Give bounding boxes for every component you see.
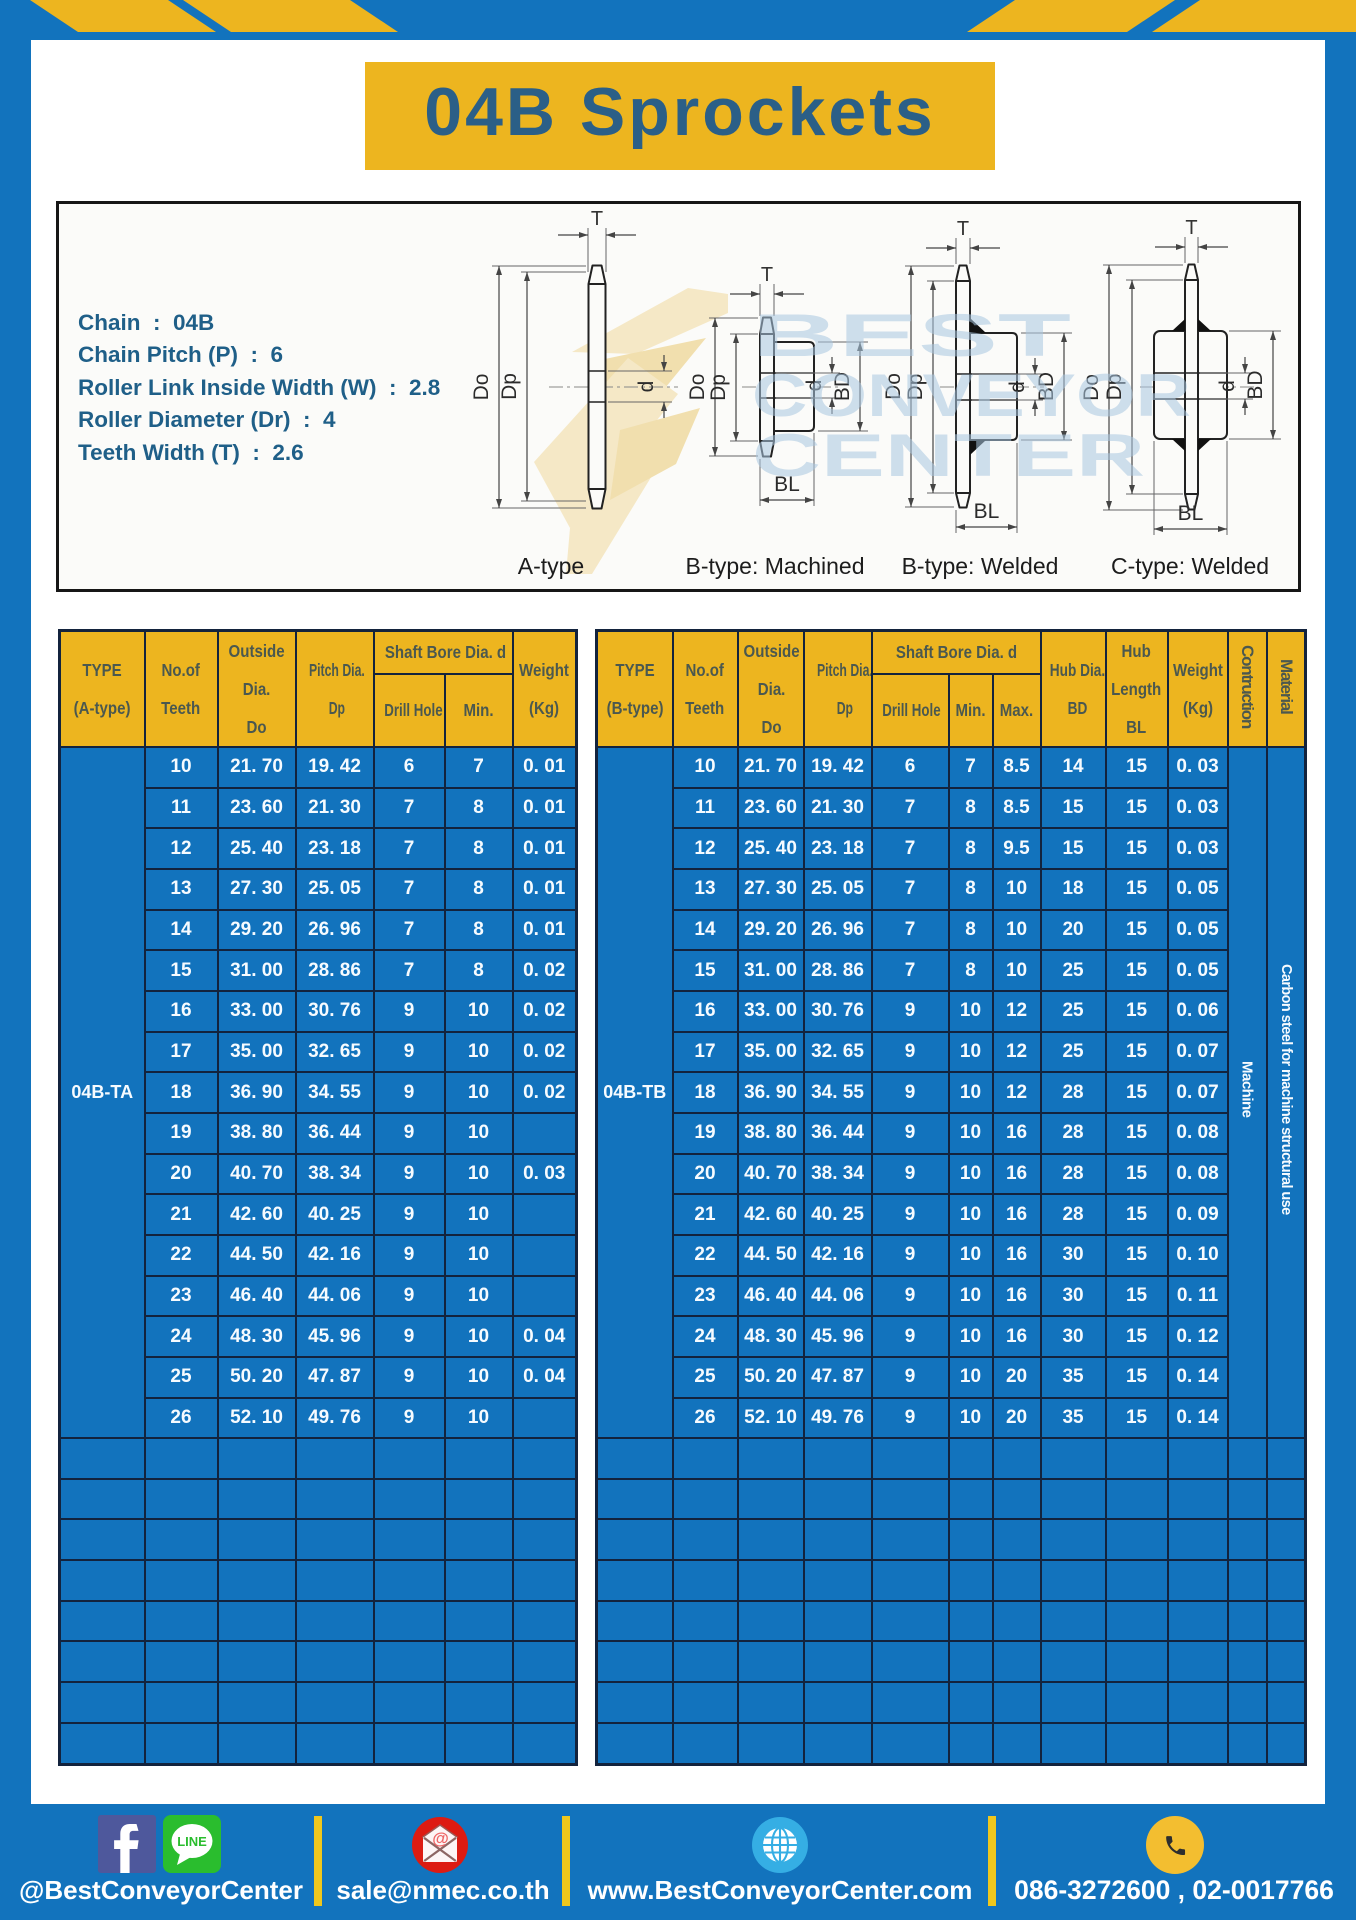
- svg-text:CONVEYOR: CONVEYOR: [752, 362, 1191, 429]
- svg-text:BL: BL: [1178, 502, 1204, 525]
- svg-text:T: T: [591, 208, 603, 230]
- svg-text:B-type: Machined: B-type: Machined: [686, 553, 865, 579]
- svg-text:@: @: [432, 1829, 449, 1848]
- svg-text:d: d: [635, 381, 658, 393]
- svg-text:B-type: Welded: B-type: Welded: [902, 553, 1059, 579]
- svg-text:Do: Do: [686, 374, 709, 401]
- svg-text:LINE: LINE: [177, 1834, 207, 1849]
- svg-text:BL: BL: [974, 500, 1000, 523]
- svg-text:BD: BD: [1244, 370, 1267, 399]
- svg-text:Dp: Dp: [498, 373, 521, 400]
- svg-text:Do: Do: [470, 374, 493, 401]
- svg-text:Dp: Dp: [707, 374, 730, 401]
- svg-text:C-type: Welded: C-type: Welded: [1111, 553, 1269, 579]
- svg-text:BEST: BEST: [752, 302, 1071, 369]
- svg-text:T: T: [1185, 217, 1197, 239]
- svg-text:T: T: [957, 218, 969, 240]
- svg-text:T: T: [761, 264, 773, 286]
- svg-text:CENTER: CENTER: [752, 422, 1145, 489]
- svg-text:d: d: [1216, 380, 1239, 392]
- svg-text:A-type: A-type: [518, 553, 584, 579]
